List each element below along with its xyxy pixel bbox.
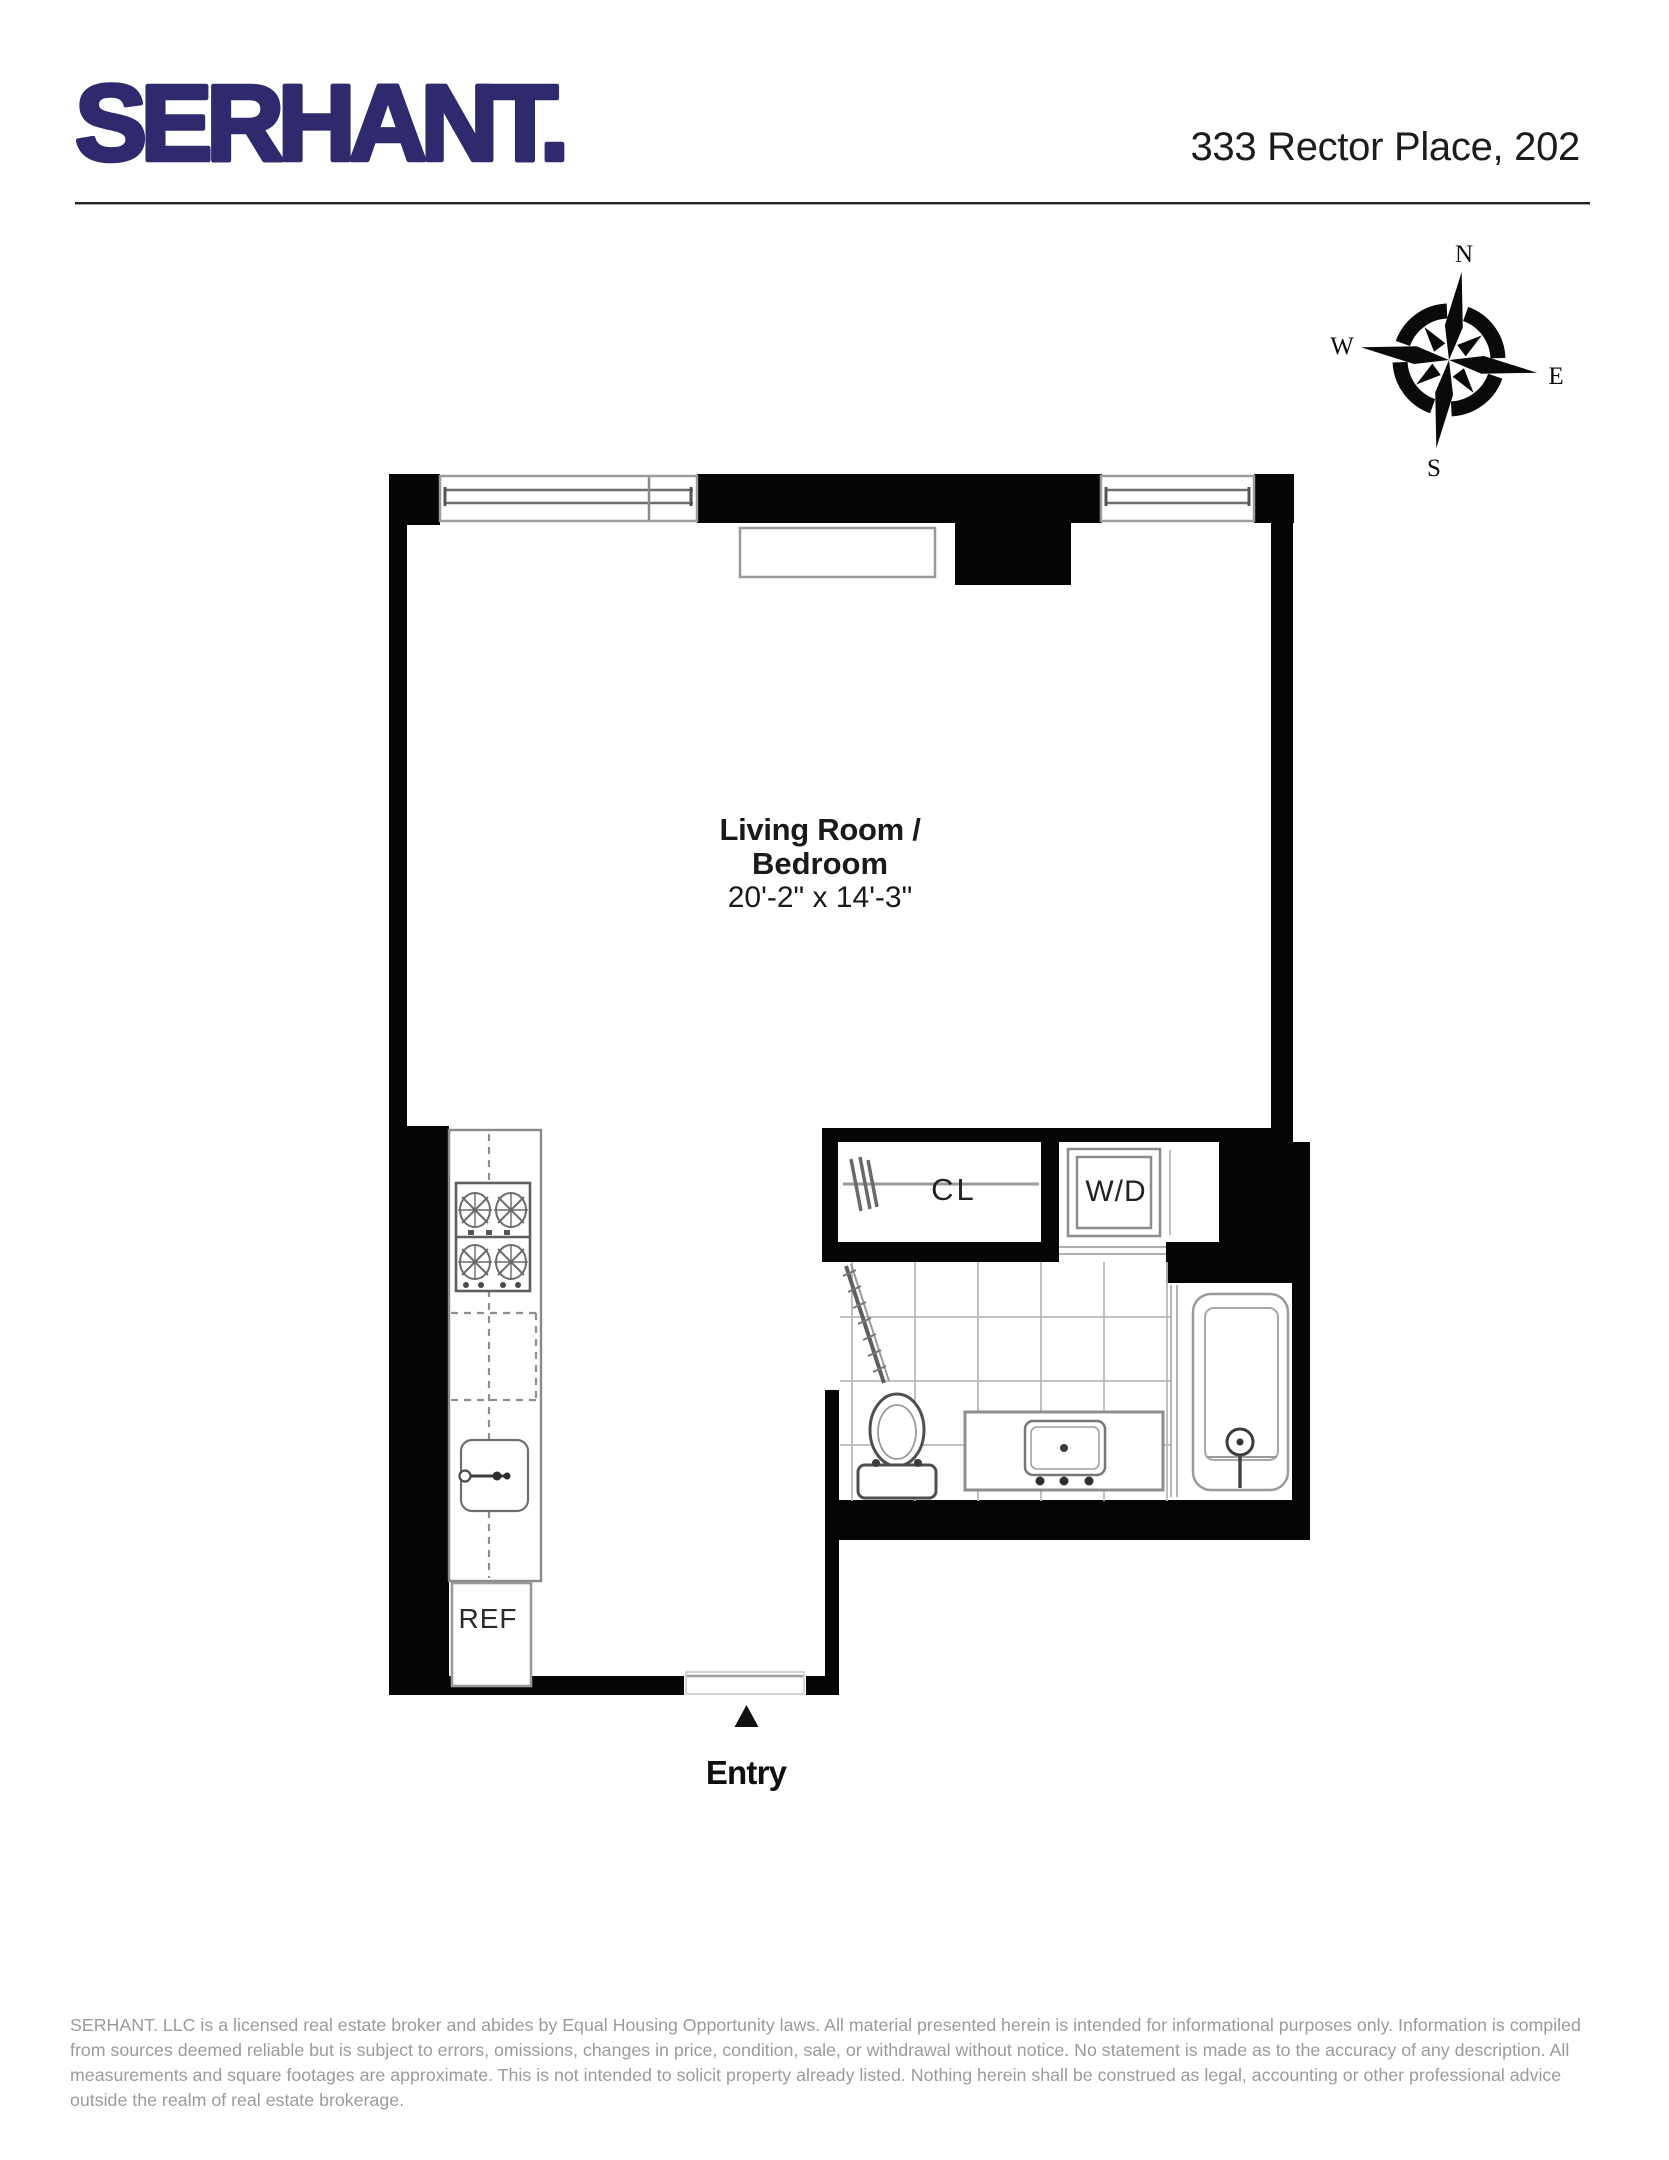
svg-text:E: E [1548,363,1563,390]
svg-text:S: S [1427,455,1441,482]
svg-text:CL: CL [931,1172,977,1207]
svg-text:333 Rector Place, 202: 333 Rector Place, 202 [1190,125,1580,169]
svg-text:SERHANT.: SERHANT. [75,62,563,183]
svg-text:W/D: W/D [1085,1175,1146,1208]
svg-text:REF: REF [459,1603,518,1634]
svg-text:SERHANT. LLC is a licensed rea: SERHANT. LLC is a licensed real estate b… [70,2015,1581,2035]
svg-text:Living Room /: Living Room / [719,812,921,847]
svg-text:outside the realm of real esta: outside the realm of real estate brokera… [70,2090,404,2110]
svg-text:N: N [1455,241,1473,268]
svg-text:measurements and square footag: measurements and square footages are app… [70,2065,1561,2085]
svg-text:from sources deemed reliable b: from sources deemed reliable but is subj… [70,2040,1569,2060]
svg-text:Entry: Entry [706,1754,788,1791]
svg-text:Bedroom: Bedroom [752,846,888,881]
svg-text:W: W [1330,333,1354,360]
svg-text:20'-2" x 14'-3": 20'-2" x 14'-3" [728,881,913,914]
